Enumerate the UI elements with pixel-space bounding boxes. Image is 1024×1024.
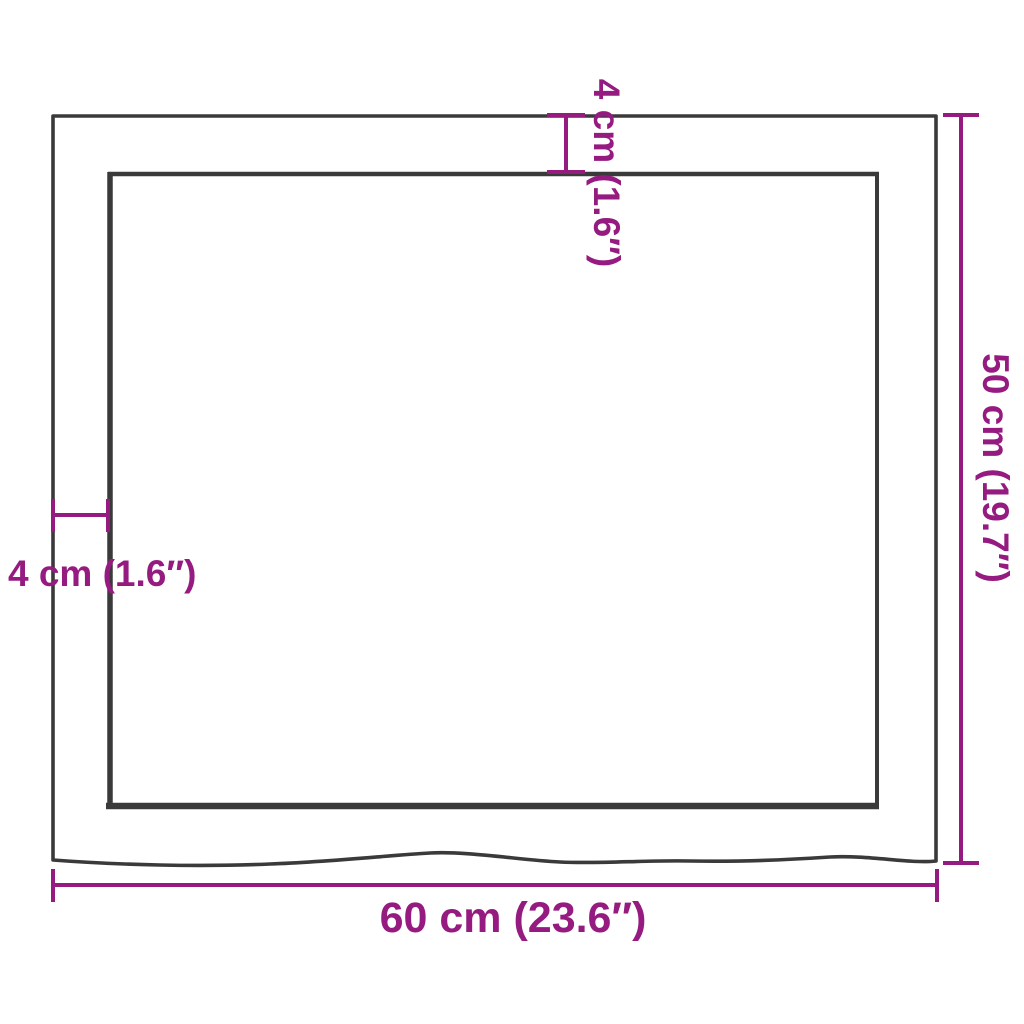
- top-thickness-dim-line: [564, 116, 568, 173]
- left-thickness-dim-line: [53, 513, 110, 517]
- height-label: 50 cm (19.7″): [973, 346, 1017, 590]
- top-thickness-label: 4 cm (1.6″): [584, 73, 628, 273]
- left-thickness-dim-tick-outer: [51, 499, 55, 532]
- height-dim-tick-bottom: [943, 861, 979, 865]
- width-dim-tick-right: [935, 869, 939, 902]
- top-thickness-dim-tick-inner: [547, 170, 585, 174]
- height-dim-line: [959, 115, 963, 864]
- top-thickness-dim-tick-outer: [547, 113, 585, 117]
- dimension-diagram: 4 cm (1.6″) 50 cm (19.7″) 4 cm (1.6″) 60…: [0, 0, 1024, 1024]
- left-thickness-label: 4 cm (1.6″): [8, 552, 194, 596]
- board-drawing: [0, 0, 1024, 1024]
- width-dim-tick-left: [51, 869, 55, 902]
- left-thickness-dim-tick-inner: [106, 499, 110, 532]
- board-outer-edge: [53, 116, 936, 865]
- width-dim-line: [53, 883, 937, 887]
- height-dim-tick-top: [943, 113, 979, 117]
- width-label: 60 cm (23.6″): [313, 896, 713, 940]
